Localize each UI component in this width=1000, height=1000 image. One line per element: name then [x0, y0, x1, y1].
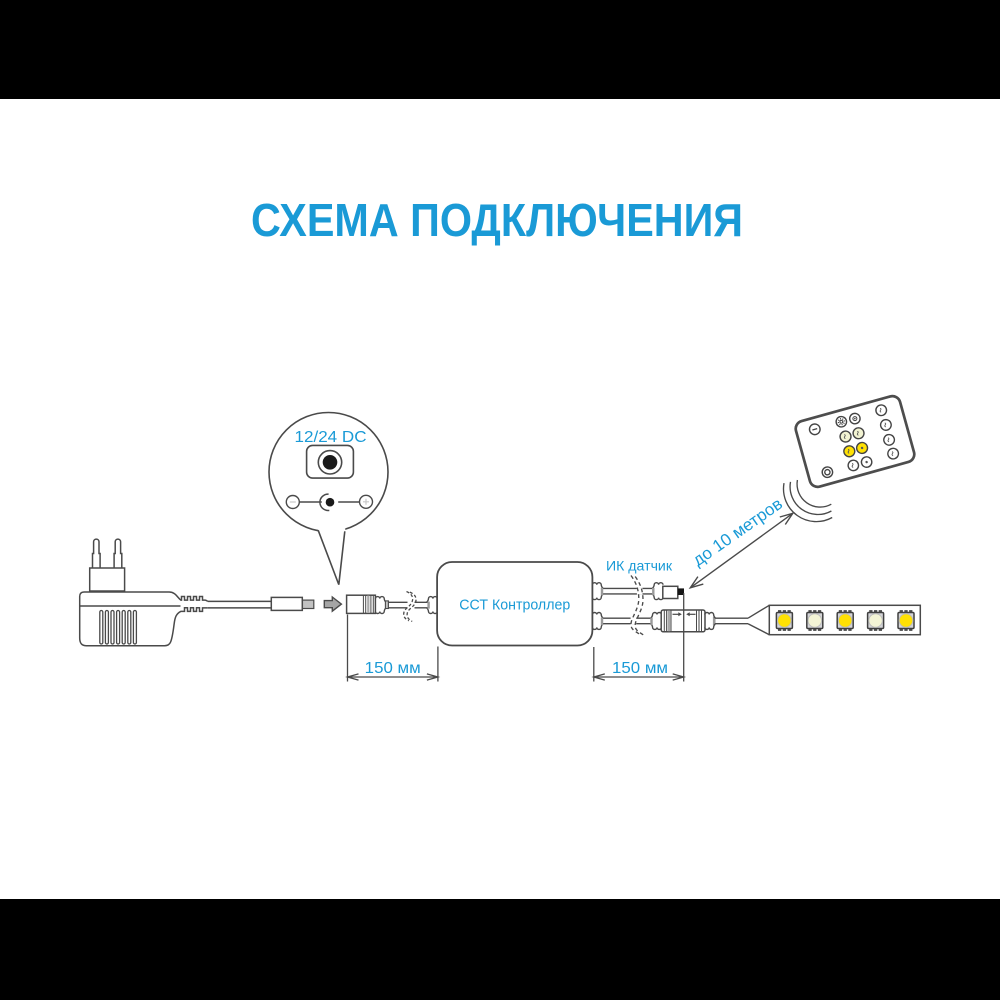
svg-text:ССТ Контроллер: ССТ Контроллер — [459, 597, 570, 614]
svg-text:ИК датчик: ИК датчик — [606, 558, 673, 574]
svg-text:СХЕМА ПОДКЛЮЧЕНИЯ: СХЕМА ПОДКЛЮЧЕНИЯ — [251, 194, 743, 246]
svg-text:150 мм: 150 мм — [612, 660, 668, 677]
svg-text:12/24 DC: 12/24 DC — [295, 429, 367, 446]
svg-text:150 мм: 150 мм — [365, 660, 421, 677]
